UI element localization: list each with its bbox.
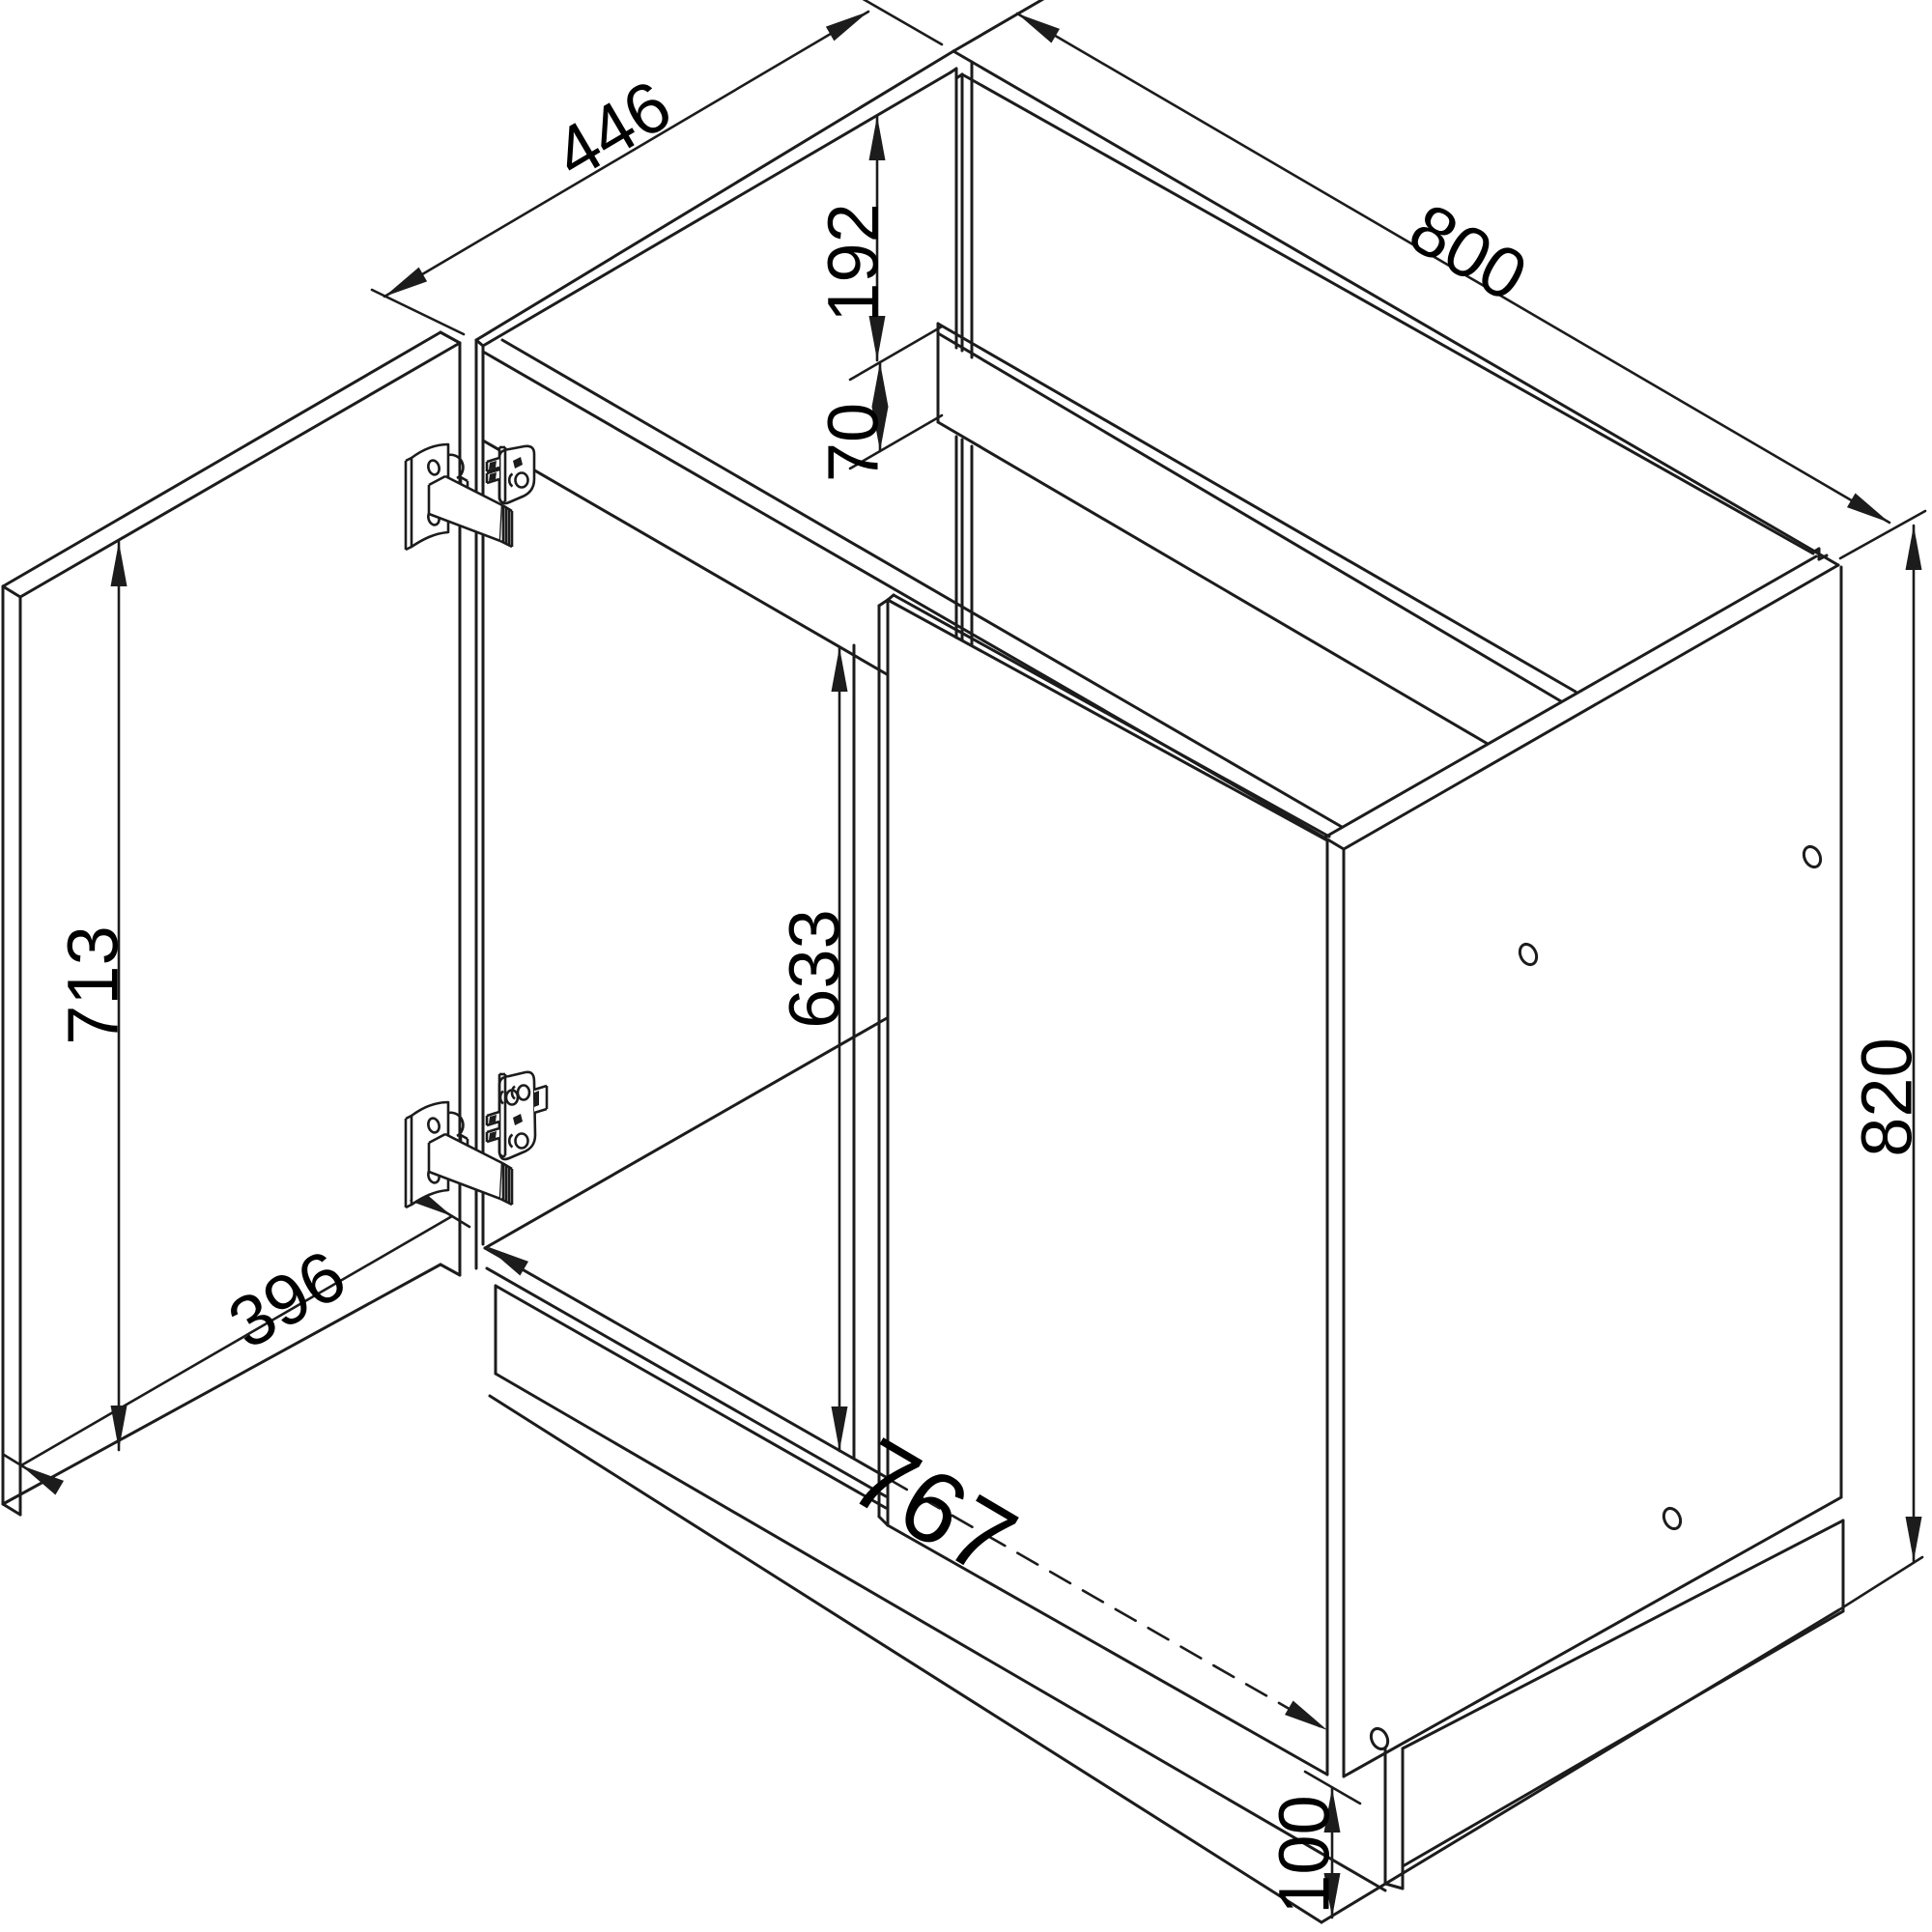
svg-text:820: 820 — [1847, 1037, 1927, 1156]
svg-text:100: 100 — [1264, 1795, 1345, 1914]
svg-text:70: 70 — [813, 403, 894, 482]
svg-text:192: 192 — [813, 203, 894, 322]
svg-text:713: 713 — [53, 925, 133, 1044]
svg-text:633: 633 — [775, 909, 855, 1028]
